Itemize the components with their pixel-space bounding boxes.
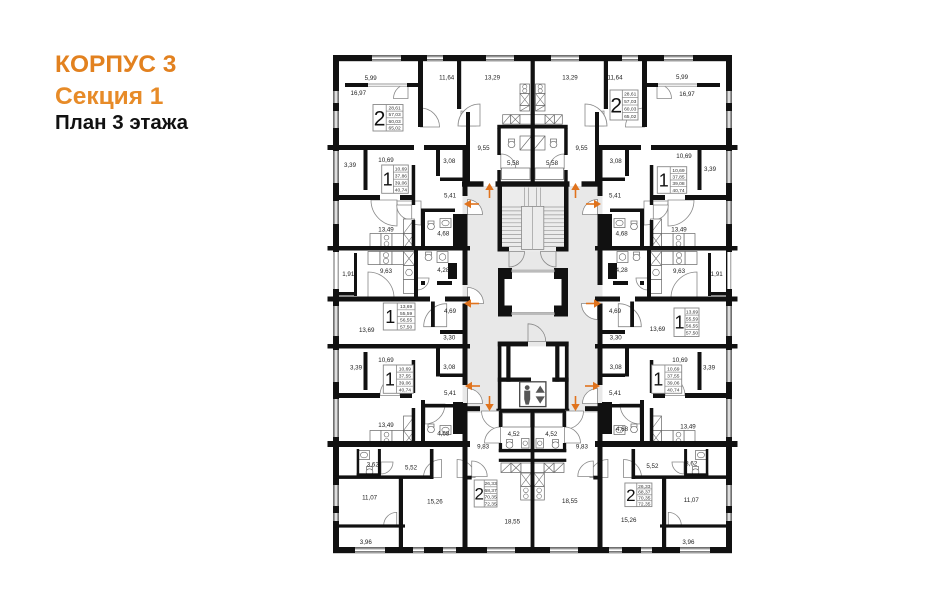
svg-text:5,52: 5,52	[646, 463, 659, 470]
svg-text:40,74: 40,74	[395, 188, 408, 194]
svg-text:13,29: 13,29	[485, 75, 501, 82]
svg-text:4,69: 4,69	[444, 308, 457, 315]
svg-text:2: 2	[474, 485, 483, 504]
svg-text:11,64: 11,64	[607, 75, 623, 82]
svg-text:4,68: 4,68	[437, 231, 450, 238]
svg-text:13,29: 13,29	[562, 75, 578, 82]
svg-text:10,69: 10,69	[667, 366, 680, 372]
svg-text:10,69: 10,69	[672, 168, 685, 174]
svg-text:39,08: 39,08	[672, 181, 685, 187]
svg-text:40,74: 40,74	[399, 388, 412, 394]
svg-text:37,85: 37,85	[672, 175, 685, 181]
svg-text:Секция 1: Секция 1	[55, 83, 163, 110]
svg-text:3,39: 3,39	[704, 166, 717, 173]
svg-text:1: 1	[385, 370, 395, 390]
svg-text:5,41: 5,41	[609, 390, 622, 397]
svg-text:9,63: 9,63	[673, 268, 686, 275]
svg-text:60,03: 60,03	[388, 119, 401, 125]
svg-text:10,69: 10,69	[672, 357, 688, 364]
svg-text:26,33: 26,33	[638, 484, 651, 490]
svg-text:10,69: 10,69	[378, 357, 394, 364]
svg-text:15,26: 15,26	[427, 499, 443, 506]
svg-text:70,35: 70,35	[484, 495, 497, 501]
svg-text:3,30: 3,30	[610, 335, 623, 342]
svg-text:18,55: 18,55	[562, 498, 578, 505]
svg-text:39,06: 39,06	[395, 181, 408, 187]
svg-text:37,86: 37,86	[395, 173, 408, 179]
svg-text:60,03: 60,03	[624, 107, 637, 113]
svg-text:1,91: 1,91	[711, 271, 724, 278]
svg-text:3,96: 3,96	[682, 539, 695, 546]
svg-text:1: 1	[674, 313, 684, 333]
svg-text:13,69: 13,69	[686, 309, 699, 315]
svg-text:3,30: 3,30	[443, 335, 456, 342]
svg-text:10,69: 10,69	[399, 366, 412, 372]
svg-text:1: 1	[653, 370, 663, 390]
svg-text:4,28: 4,28	[437, 267, 450, 274]
svg-text:57,50: 57,50	[400, 324, 413, 330]
svg-text:9,83: 9,83	[576, 444, 589, 451]
svg-text:4,68: 4,68	[616, 231, 629, 238]
svg-text:37,55: 37,55	[667, 373, 680, 379]
svg-text:3,62: 3,62	[685, 461, 698, 468]
svg-text:70,35: 70,35	[638, 496, 651, 502]
svg-text:План 3 этажа: План 3 этажа	[55, 111, 189, 134]
svg-text:15,26: 15,26	[621, 517, 637, 524]
svg-text:1: 1	[659, 171, 669, 191]
svg-text:1,91: 1,91	[342, 271, 355, 278]
svg-text:10,69: 10,69	[395, 166, 408, 172]
svg-text:2: 2	[610, 95, 622, 118]
svg-text:11,64: 11,64	[439, 75, 455, 82]
svg-text:11,07: 11,07	[362, 495, 378, 502]
svg-text:КОРПУС 3: КОРПУС 3	[55, 51, 176, 78]
svg-text:55,59: 55,59	[686, 317, 699, 323]
svg-text:13,69: 13,69	[650, 326, 666, 333]
svg-text:4,28: 4,28	[616, 267, 629, 274]
svg-text:65,02: 65,02	[388, 126, 401, 132]
svg-text:3,08: 3,08	[610, 158, 623, 165]
svg-text:9,83: 9,83	[477, 444, 490, 451]
svg-text:28,61: 28,61	[388, 106, 401, 112]
svg-text:9,55: 9,55	[477, 145, 490, 152]
svg-text:3,39: 3,39	[344, 162, 357, 169]
svg-text:56,55: 56,55	[400, 318, 413, 324]
svg-text:40,74: 40,74	[672, 188, 685, 194]
svg-text:13,69: 13,69	[400, 304, 413, 310]
svg-text:72,35: 72,35	[638, 502, 651, 508]
svg-text:5,99: 5,99	[365, 75, 378, 82]
svg-text:13,69: 13,69	[359, 327, 375, 334]
svg-text:2: 2	[374, 107, 386, 130]
svg-text:4,68: 4,68	[437, 431, 450, 438]
svg-text:5,99: 5,99	[676, 74, 689, 81]
svg-text:68,37: 68,37	[484, 488, 497, 494]
svg-text:5,41: 5,41	[609, 193, 622, 200]
svg-text:57,03: 57,03	[624, 99, 637, 105]
svg-text:4,68: 4,68	[616, 426, 629, 433]
svg-text:13,49: 13,49	[671, 227, 687, 234]
svg-text:3,08: 3,08	[610, 364, 623, 371]
svg-text:68,37: 68,37	[638, 490, 651, 496]
svg-text:3,96: 3,96	[360, 539, 373, 546]
svg-text:4,69: 4,69	[609, 308, 622, 315]
svg-text:72,35: 72,35	[484, 501, 497, 507]
svg-text:3,39: 3,39	[703, 365, 716, 372]
svg-text:2: 2	[626, 486, 635, 505]
svg-text:3,08: 3,08	[443, 364, 456, 371]
svg-text:9,63: 9,63	[380, 268, 393, 275]
svg-text:40,74: 40,74	[667, 388, 680, 394]
svg-text:1: 1	[383, 170, 393, 190]
svg-text:5,52: 5,52	[405, 465, 418, 472]
svg-text:26,33: 26,33	[484, 481, 497, 487]
svg-text:16,97: 16,97	[679, 91, 695, 98]
svg-text:39,06: 39,06	[667, 381, 680, 387]
svg-text:10,69: 10,69	[378, 157, 394, 164]
svg-text:37,55: 37,55	[399, 373, 412, 379]
svg-text:13,49: 13,49	[378, 422, 394, 429]
svg-text:16,97: 16,97	[351, 90, 367, 97]
svg-text:18,55: 18,55	[505, 519, 521, 526]
svg-text:4,52: 4,52	[545, 431, 558, 438]
svg-text:10,69: 10,69	[676, 153, 692, 160]
svg-text:13,49: 13,49	[378, 227, 394, 234]
svg-text:3,39: 3,39	[350, 365, 363, 372]
svg-text:9,55: 9,55	[575, 145, 588, 152]
svg-text:57,03: 57,03	[388, 112, 401, 118]
svg-text:39,06: 39,06	[399, 381, 412, 387]
svg-text:13,49: 13,49	[680, 424, 696, 431]
svg-text:28,61: 28,61	[624, 92, 637, 98]
svg-text:11,07: 11,07	[684, 497, 700, 504]
svg-text:1: 1	[385, 307, 395, 327]
svg-text:65,02: 65,02	[624, 114, 637, 120]
svg-text:5,58: 5,58	[546, 160, 559, 167]
svg-text:3,62: 3,62	[367, 462, 380, 469]
svg-text:57,50: 57,50	[686, 331, 699, 337]
svg-text:5,41: 5,41	[444, 193, 457, 200]
svg-text:3,08: 3,08	[443, 158, 456, 165]
svg-text:55,59: 55,59	[400, 311, 413, 317]
svg-text:56,55: 56,55	[686, 324, 699, 330]
svg-text:4,52: 4,52	[508, 431, 521, 438]
svg-text:5,58: 5,58	[507, 160, 520, 167]
svg-text:5,41: 5,41	[444, 390, 457, 397]
